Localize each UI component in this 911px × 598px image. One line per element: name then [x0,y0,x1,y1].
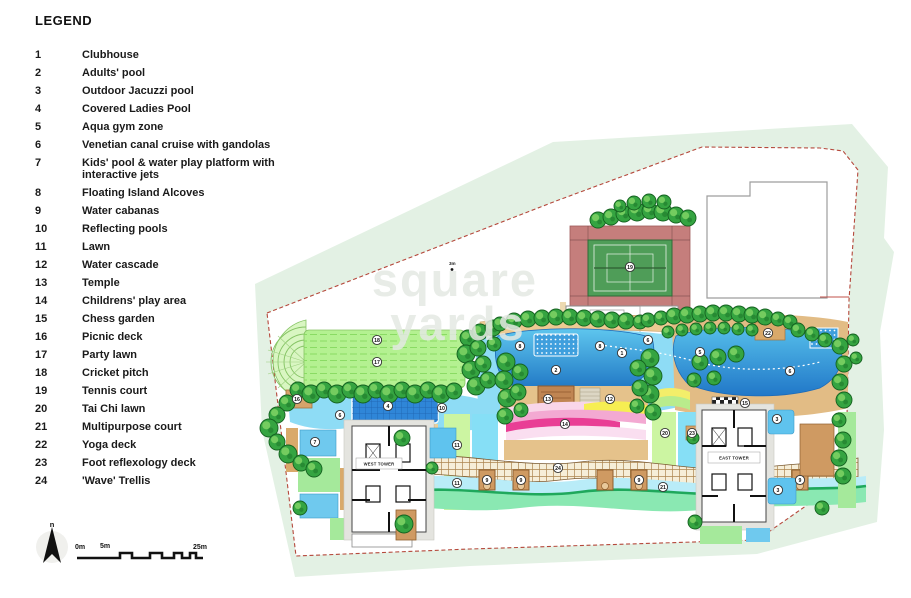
plan-marker-6: 6 [335,410,344,419]
svg-text:11: 11 [454,443,460,449]
svg-text:16: 16 [294,397,300,403]
plan-marker-12: 12 [605,394,614,403]
tree-icon [632,380,648,396]
tree-icon [293,501,307,515]
tree-icon [534,310,550,326]
tree-icon [847,334,859,346]
tree-icon [395,515,413,533]
svg-text:6: 6 [789,369,792,375]
tree-icon [497,408,513,424]
watermark-line2: yards [390,297,525,350]
svg-text:9: 9 [638,478,641,484]
tree-icon [688,515,702,529]
tree-icon [604,312,620,328]
plan-marker-18: 18 [372,335,381,344]
plan-marker-11: 11 [452,440,461,449]
tree-icon [426,462,438,474]
svg-text:11: 11 [454,481,460,487]
scale-bar: 0m 5m 25m [75,543,207,558]
tree-icon [732,323,744,335]
plan-marker-10: 10 [437,403,446,412]
svg-text:20: 20 [662,431,668,437]
tree-icon [446,383,462,399]
tree-icon [562,309,578,325]
svg-text:2: 2 [555,368,558,374]
survey-annotation-label: 3m [449,261,456,266]
tree-icon [590,311,606,327]
svg-text:15: 15 [742,401,748,407]
plan-marker-13: 13 [543,394,552,403]
plan-marker-22: 22 [763,328,772,337]
plan-marker-3: 3 [772,414,781,423]
svg-text:13: 13 [545,397,551,403]
scale-label-0m: 0m [75,544,85,551]
plan-marker-6: 6 [643,335,652,344]
tree-icon [815,501,829,515]
svg-text:12: 12 [607,397,613,403]
svg-text:23: 23 [689,431,695,437]
plan-marker-9: 9 [634,475,643,484]
plan-marker-9: 9 [482,475,491,484]
svg-text:10: 10 [439,406,445,412]
plan-marker-17: 17 [372,357,381,366]
tree-icon [497,353,515,371]
tree-icon [835,468,851,484]
svg-text:3: 3 [777,488,780,494]
tree-icon [480,372,496,388]
plan-marker-16: 16 [292,394,301,403]
tree-icon [676,324,688,336]
svg-text:9: 9 [799,478,802,484]
scale-label-5m: 5m [100,543,110,550]
tree-icon [394,430,410,446]
tree-icon [514,403,528,417]
tree-icon [832,374,848,390]
north-arrow-label: n [50,520,55,529]
tree-icon [510,384,526,400]
svg-text:22: 22 [765,331,771,337]
plan-marker-20: 20 [660,428,669,437]
plan-marker-5: 5 [695,347,704,356]
svg-text:4: 4 [387,404,390,410]
tree-icon [728,346,744,362]
adjacent-building [707,182,827,298]
plan-marker-19: 19 [625,262,634,271]
tree-icon [850,352,862,364]
tree-icon [642,194,656,208]
tree-icon [644,367,662,385]
svg-text:3: 3 [776,417,779,423]
tree-icon [645,404,661,420]
tree-icon [835,432,851,448]
plan-marker-15: 15 [740,398,749,407]
tree-icon [831,450,847,466]
tree-icon [687,373,701,387]
tree-icon [718,322,730,334]
tree-icon [710,349,726,365]
plan-marker-7: 7 [310,437,319,446]
north-arrow: n [36,520,68,563]
plan-marker-23: 23 [687,428,696,437]
tree-icon [630,360,646,376]
west-tower-label: WEST TOWER [364,462,395,467]
tree-icon [614,200,626,212]
tree-icon [627,196,641,210]
tree-icon [836,392,852,408]
svg-text:9: 9 [486,478,489,484]
tree-icon [690,323,702,335]
east-tower-label: EAST TOWER [719,456,749,461]
plan-marker-9: 9 [795,475,804,484]
tree-icon [704,322,716,334]
plan-marker-14: 14 [560,419,569,428]
svg-text:6: 6 [647,338,650,344]
svg-text:1: 1 [621,351,624,357]
tree-icon [630,399,644,413]
svg-text:18: 18 [374,338,380,344]
tree-icon [306,461,322,477]
tree-icon [641,313,655,327]
svg-text:7: 7 [314,440,317,446]
tree-icon [757,309,773,325]
plan-marker-2: 2 [551,365,560,374]
svg-text:14: 14 [562,422,568,428]
tree-icon [657,195,671,209]
tree-icon [512,364,528,380]
plan-marker-6: 6 [785,366,794,375]
svg-text:19: 19 [627,265,633,271]
scale-label-25m: 25m [193,544,207,551]
tree-icon [662,326,674,338]
tree-icon [680,210,696,226]
plan-marker-11: 11 [452,478,461,487]
svg-text:8: 8 [599,344,602,350]
tree-icon [805,327,819,341]
watermark: square yards [372,253,538,350]
tree-icon [832,413,846,427]
tree-icon [818,333,832,347]
tree-icon [576,310,592,326]
tree-icon [746,324,758,336]
tree-icon [832,338,848,354]
site-plan-page: LEGEND 1Clubhouse2Adults' pool3Outdoor J… [0,0,911,598]
master-plan-drawing: WEST TOWER EAST TOWER 1911 [0,0,911,598]
svg-text:5: 5 [699,350,702,356]
plan-marker-4: 4 [383,401,392,410]
svg-text:21: 21 [660,485,666,491]
plan-marker-1: 1 [617,348,626,357]
plan-marker-24: 24 [553,463,562,472]
svg-text:17: 17 [374,360,380,366]
tree-icon [495,371,513,389]
svg-text:6: 6 [339,413,342,419]
svg-text:24: 24 [555,466,561,472]
tree-icon [791,323,805,337]
plan-marker-8: 8 [595,341,604,350]
water-cabana [597,470,613,490]
tree-icon [475,356,491,372]
plan-marker-21: 21 [658,482,667,491]
svg-text:9: 9 [520,478,523,484]
plan-marker-9: 9 [516,475,525,484]
plan-marker-3: 3 [773,485,782,494]
tree-icon [618,313,634,329]
tree-icon [707,371,721,385]
